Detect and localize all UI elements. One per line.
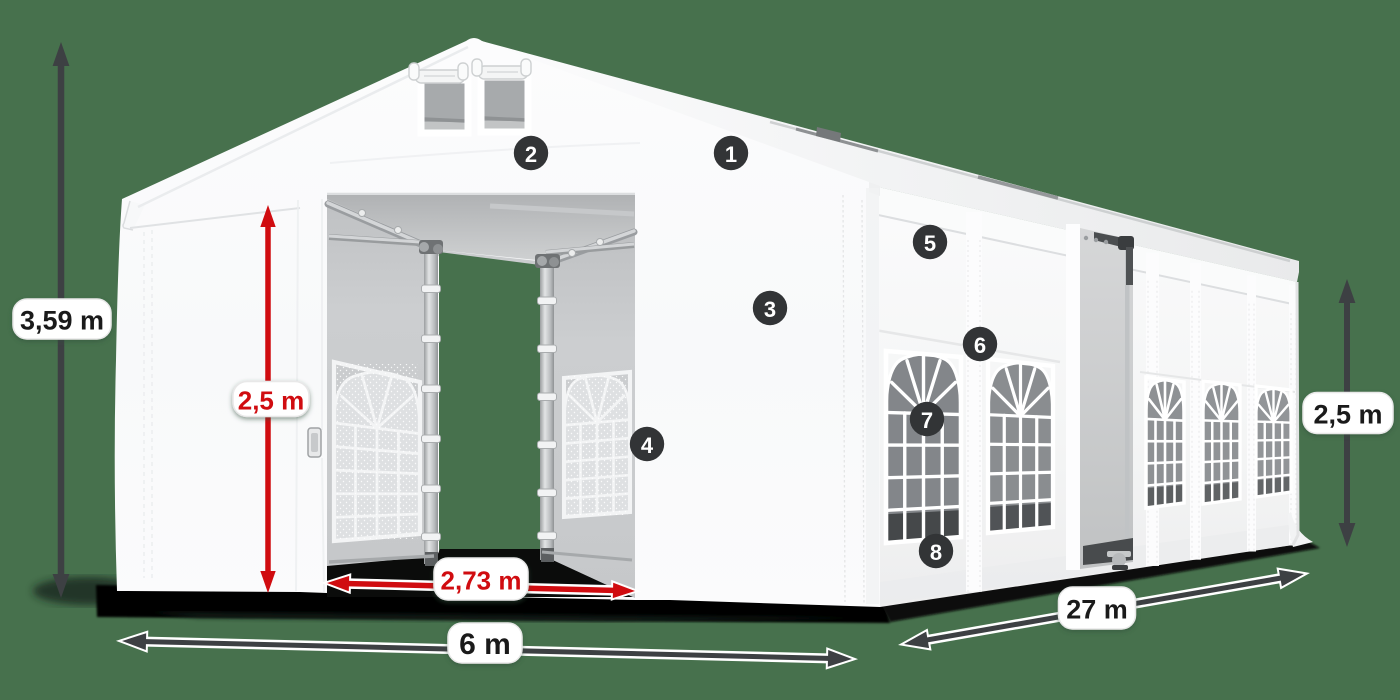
svg-text:6 m: 6 m (459, 628, 511, 661)
svg-text:7: 7 (921, 408, 933, 433)
svg-text:27 m: 27 m (1066, 595, 1128, 625)
svg-text:2,73 m: 2,73 m (441, 566, 522, 596)
svg-text:6: 6 (974, 333, 986, 358)
svg-text:2: 2 (525, 142, 537, 167)
svg-text:5: 5 (924, 231, 936, 256)
svg-text:8: 8 (930, 540, 942, 565)
svg-text:1: 1 (725, 142, 737, 167)
svg-text:2,5 m: 2,5 m (238, 386, 305, 416)
svg-text:3: 3 (764, 297, 776, 322)
svg-text:3,59 m: 3,59 m (20, 306, 104, 336)
svg-text:4: 4 (641, 433, 654, 458)
svg-text:2,5 m: 2,5 m (1313, 400, 1382, 430)
